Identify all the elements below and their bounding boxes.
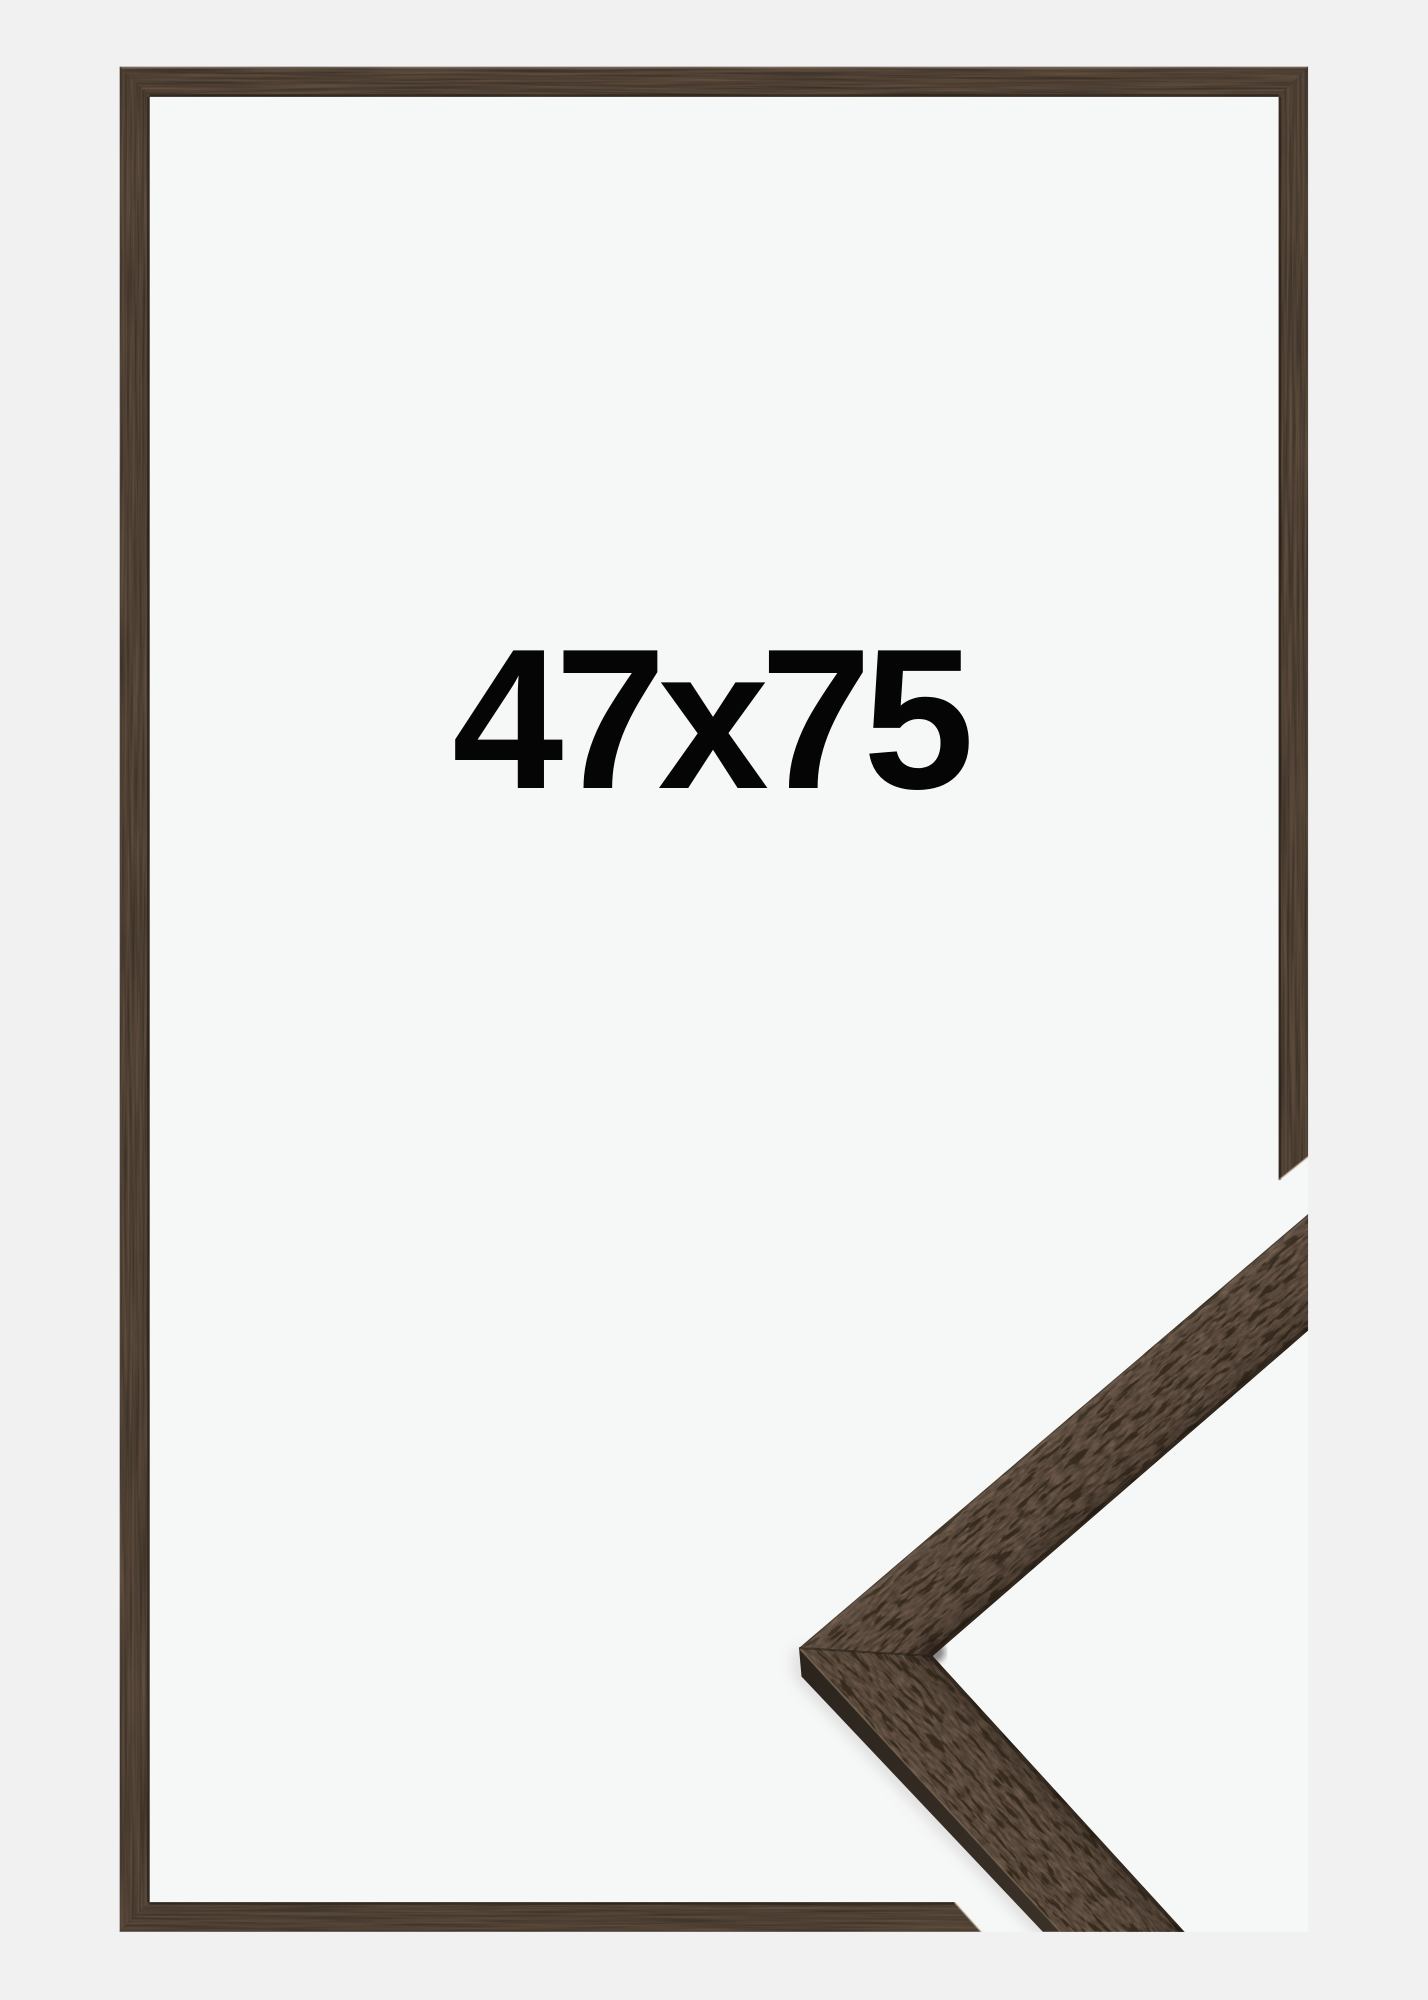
svg-text:47x75: 47x75	[452, 608, 969, 831]
